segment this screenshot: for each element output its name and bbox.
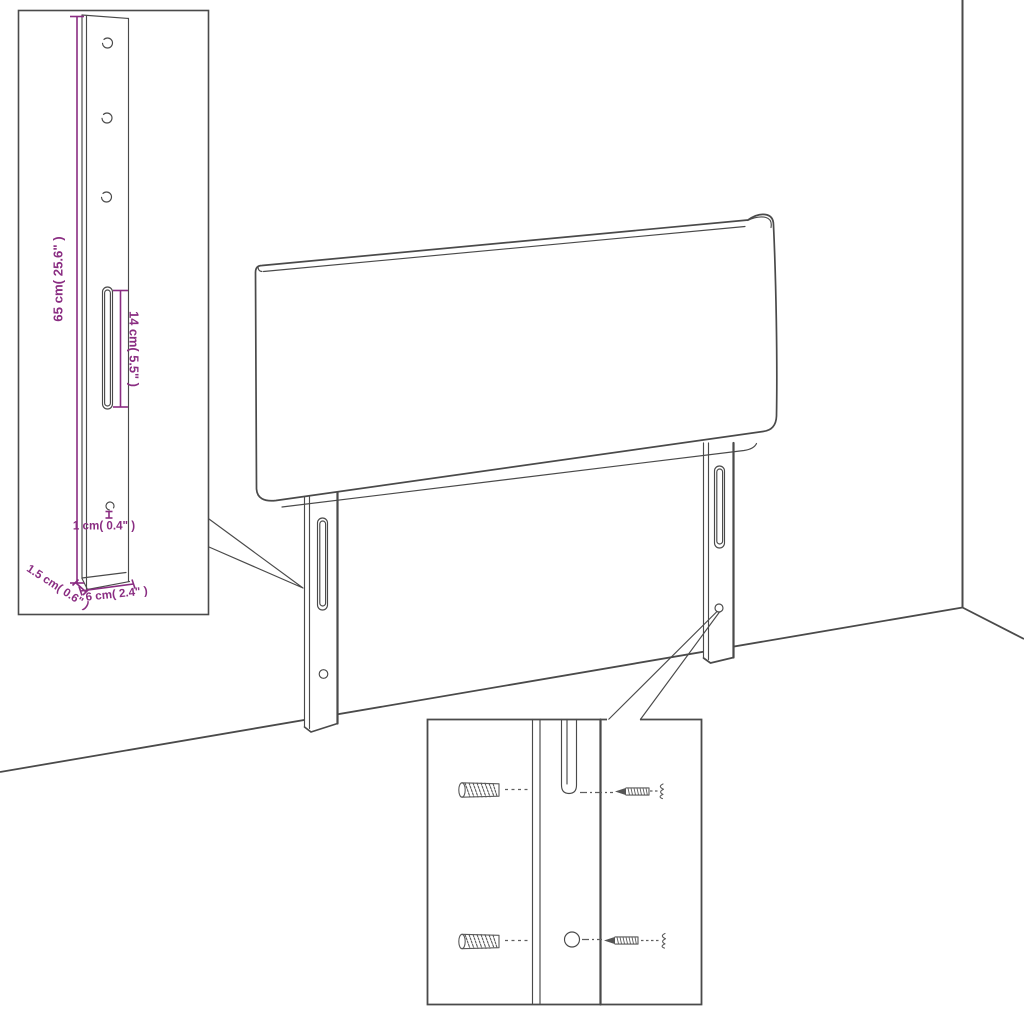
hardware-inset-border	[428, 720, 702, 1005]
headboard-panel	[256, 214, 777, 507]
left-leg	[305, 490, 338, 732]
callout-lines	[209, 519, 720, 721]
hardware-detail-inset	[428, 720, 702, 1005]
dimension-label-hole-diameter: 1 cm( 0.4" )	[73, 520, 135, 533]
floor-line-right	[963, 608, 1024, 640]
dimension-label-slot-length: 14 cm( 5.5" )	[127, 311, 142, 387]
right-leg	[704, 441, 734, 663]
headboard-diagram: 65 cm( 25.6" ) 14 cm( 5.5" ) 1 cm( 0.4" …	[0, 0, 1024, 1024]
diagram-canvas: 65 cm( 25.6" ) 14 cm( 5.5" ) 1 cm( 0.4" …	[0, 0, 1024, 1024]
dimension-label-bracket-height: 65 cm( 25.6" )	[51, 236, 66, 321]
bracket-detail-inset: 65 cm( 25.6" ) 14 cm( 5.5" ) 1 cm( 0.4" …	[19, 11, 209, 615]
callout-to-left-leg	[209, 519, 303, 588]
